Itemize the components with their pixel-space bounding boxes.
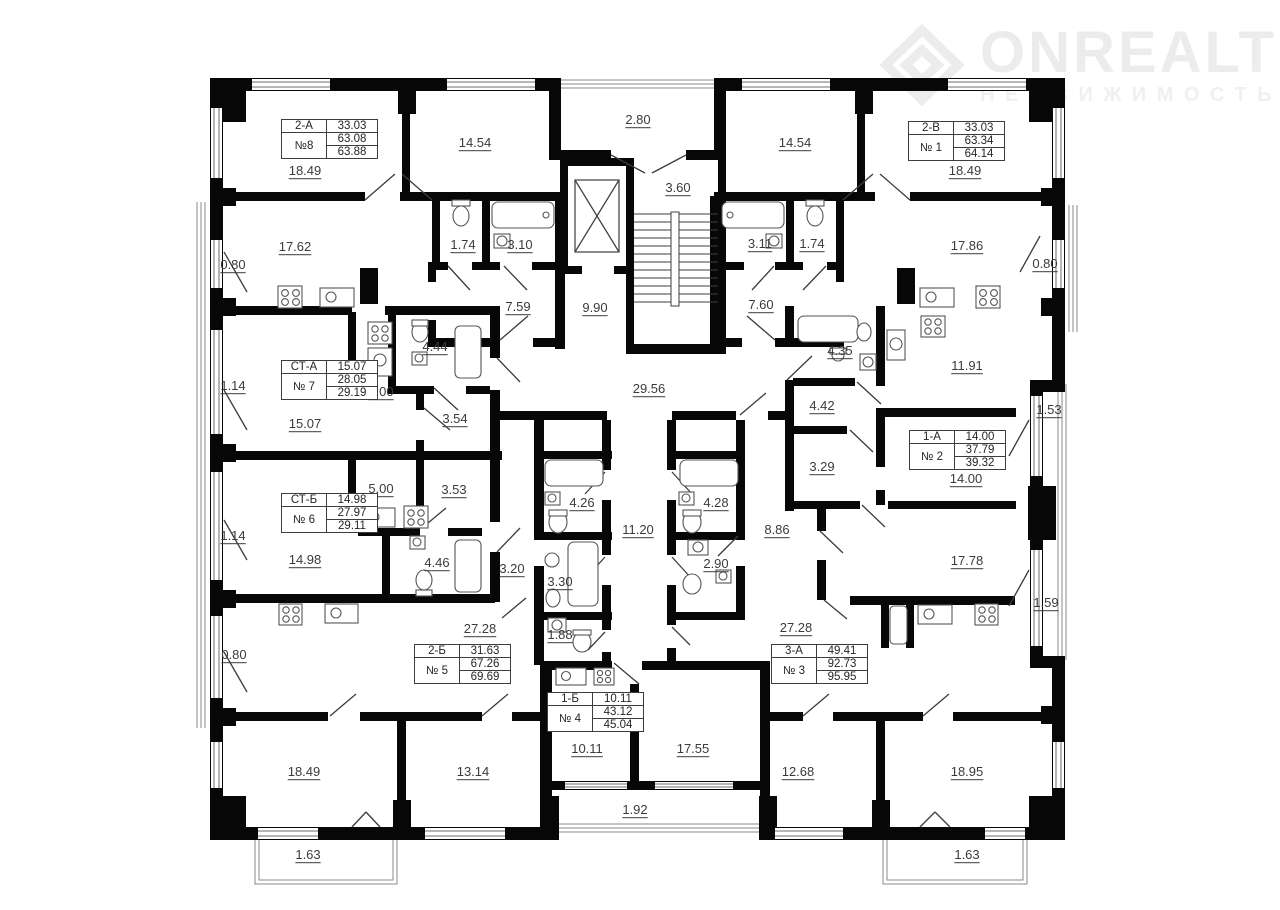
apartment-living-area: 92.73 — [817, 658, 868, 671]
apartment-total-area: 39.32 — [955, 457, 1006, 470]
apartment-type: 3-А — [772, 645, 817, 658]
apartment-info-table: СТ-А15.07№ 728.0529.19 — [281, 360, 378, 400]
floor-plan-page: ONREALT НЕДВИЖИМОСТЬ — [0, 0, 1280, 910]
apartment-info-table: 2-А33.03№863.0863.88 — [281, 119, 378, 159]
apartment-total-area: 69.69 — [460, 671, 511, 684]
apartment-type-area: 49.41 — [817, 645, 868, 658]
apartment-type-area: 14.98 — [327, 494, 378, 507]
apartment-type: СТ-А — [282, 361, 327, 374]
apartment-living-area: 28.05 — [327, 374, 378, 387]
apartment-living-area: 63.34 — [954, 135, 1005, 148]
apartment-total-area: 64.14 — [954, 148, 1005, 161]
apartment-type-area: 31.63 — [460, 645, 511, 658]
apartment-total-area: 63.88 — [327, 146, 378, 159]
apartment-type-area: 10.11 — [593, 693, 644, 706]
apartment-number: №8 — [282, 133, 327, 159]
apartment-type-area: 33.03 — [954, 122, 1005, 135]
apartment-total-area: 45.04 — [593, 719, 644, 732]
apartment-number: № 3 — [772, 658, 817, 684]
apartment-type: СТ-Б — [282, 494, 327, 507]
apartment-type: 2-А — [282, 120, 327, 133]
apartment-info-table: 3-А49.41№ 392.7395.95 — [771, 644, 868, 684]
apartment-type: 1-Б — [548, 693, 593, 706]
apartment-tables-layer: 2-А33.03№863.0863.882-В33.03№ 163.3464.1… — [0, 0, 1280, 910]
apartment-number: № 1 — [909, 135, 954, 161]
apartment-living-area: 43.12 — [593, 706, 644, 719]
apartment-total-area: 29.19 — [327, 387, 378, 400]
apartment-number: № 5 — [415, 658, 460, 684]
apartment-type-area: 14.00 — [955, 431, 1006, 444]
apartment-info-table: СТ-Б14.98№ 627.9729.11 — [281, 493, 378, 533]
apartment-total-area: 29.11 — [327, 520, 378, 533]
apartment-type: 1-А — [910, 431, 955, 444]
apartment-living-area: 63.08 — [327, 133, 378, 146]
apartment-type: 2-В — [909, 122, 954, 135]
apartment-living-area: 67.26 — [460, 658, 511, 671]
apartment-info-table: 2-В33.03№ 163.3464.14 — [908, 121, 1005, 161]
apartment-info-table: 1-А14.00№ 237.7939.32 — [909, 430, 1006, 470]
apartment-total-area: 95.95 — [817, 671, 868, 684]
apartment-type: 2-Б — [415, 645, 460, 658]
apartment-type-area: 15.07 — [327, 361, 378, 374]
apartment-number: № 4 — [548, 706, 593, 732]
apartment-number: № 2 — [910, 444, 955, 470]
apartment-type-area: 33.03 — [327, 120, 378, 133]
apartment-living-area: 27.97 — [327, 507, 378, 520]
apartment-info-table: 1-Б10.11№ 443.1245.04 — [547, 692, 644, 732]
apartment-info-table: 2-Б31.63№ 567.2669.69 — [414, 644, 511, 684]
apartment-number: № 6 — [282, 507, 327, 533]
apartment-living-area: 37.79 — [955, 444, 1006, 457]
apartment-number: № 7 — [282, 374, 327, 400]
